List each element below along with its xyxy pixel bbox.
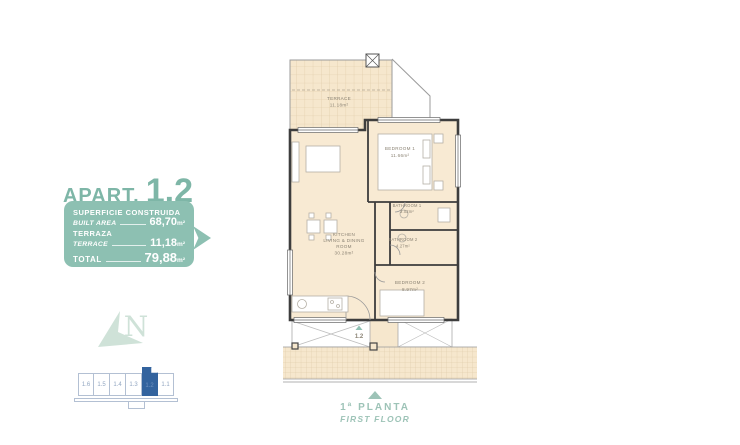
area-summary-box: SUPERFICIE CONSTRUIDA BUILT AREA 68,70 m… bbox=[64, 201, 194, 267]
terrace-unit: m² bbox=[177, 240, 185, 250]
walkway bbox=[283, 343, 477, 382]
bathroom2-area: 4.27m² bbox=[396, 244, 410, 249]
built-area-label-en: BUILT AREA bbox=[73, 219, 116, 229]
neighbour-boundary-line bbox=[392, 59, 430, 118]
floor-indicator: 1ª PLANTA FIRST FLOOR bbox=[300, 391, 450, 424]
bedroom1-name: BEDROOM 1 bbox=[385, 146, 415, 151]
terrace-label-en: TERRACE bbox=[73, 240, 108, 250]
building-base-outline bbox=[74, 398, 178, 402]
terrace-area: 11.18m² bbox=[330, 103, 349, 108]
north-compass-icon: N bbox=[93, 299, 159, 357]
entrance-unit-number: 1.2 bbox=[355, 334, 364, 340]
total-label: TOTAL bbox=[73, 255, 102, 265]
terrace-row: TERRACE 11,18 m² bbox=[73, 238, 185, 250]
up-triangle-icon bbox=[368, 391, 382, 399]
bathroom1-name: BATHROOM 1 bbox=[393, 203, 422, 208]
total-unit: m² bbox=[177, 256, 185, 266]
unit-1-2-highlighted: 1.2 bbox=[142, 367, 158, 396]
unit-1-5: 1.5 bbox=[94, 373, 110, 396]
total-row: TOTAL 79,88 m² bbox=[73, 253, 185, 266]
bedroom2-name: BEDROOM 2 bbox=[395, 280, 425, 285]
built-area-value: 68,70 bbox=[150, 217, 178, 227]
leader-line bbox=[112, 245, 146, 246]
apartment-floor-plan: TERRACE 11.18m² BEDROOM 1 11.66m² KITCHE… bbox=[280, 50, 480, 392]
pointer-arrow-icon bbox=[193, 226, 211, 250]
column-base bbox=[370, 343, 377, 350]
built-area-row: BUILT AREA 68,70 m² bbox=[73, 217, 185, 229]
built-area-unit: m² bbox=[177, 219, 185, 229]
building-units-row: 1.6 1.5 1.4 1.3 1.2 1.1 bbox=[78, 373, 174, 396]
unit-1-1: 1.1 bbox=[158, 373, 174, 396]
unit-1-6: 1.6 bbox=[78, 373, 94, 396]
floorplan-page: APART. 1.2 SUPERFICIE CONSTRUIDA BUILT A… bbox=[0, 0, 740, 445]
bedroom2-area: 8.97m² bbox=[402, 287, 418, 292]
north-letter: N bbox=[124, 310, 149, 343]
floor-name-es: 1ª PLANTA bbox=[300, 402, 450, 413]
living-line3: ROOM bbox=[336, 244, 352, 249]
bed2 bbox=[380, 290, 424, 316]
building-key-plan: 1.6 1.5 1.4 1.3 1.2 1.1 bbox=[72, 362, 184, 414]
sideboard bbox=[292, 142, 299, 182]
utility-unit bbox=[438, 208, 450, 222]
unit-1-4: 1.4 bbox=[110, 373, 126, 396]
living-line1: KITCHEN bbox=[333, 232, 355, 237]
dining-table bbox=[307, 220, 320, 233]
bedroom1-area: 11.66m² bbox=[391, 153, 410, 158]
living-area: 30.28m² bbox=[335, 251, 354, 256]
building-entry-outline bbox=[128, 402, 145, 409]
terrace-value: 11,18 bbox=[150, 238, 177, 248]
terrace-name: TERRACE bbox=[327, 96, 351, 101]
sofa bbox=[306, 146, 340, 172]
living-line2: LIVING & DINING bbox=[323, 238, 364, 243]
bathroom1-area: 3.02m² bbox=[400, 209, 414, 214]
terrace-pillar bbox=[366, 54, 379, 67]
bathroom2-name: BATHROOM 2 bbox=[389, 237, 418, 242]
leader-line bbox=[106, 261, 141, 262]
leader-line bbox=[120, 224, 145, 225]
floor-name-en: FIRST FLOOR bbox=[300, 414, 450, 424]
column-base bbox=[292, 343, 298, 349]
total-value: 79,88 bbox=[145, 253, 178, 263]
unit-1-3: 1.3 bbox=[126, 373, 142, 396]
terrace-room bbox=[290, 54, 392, 130]
